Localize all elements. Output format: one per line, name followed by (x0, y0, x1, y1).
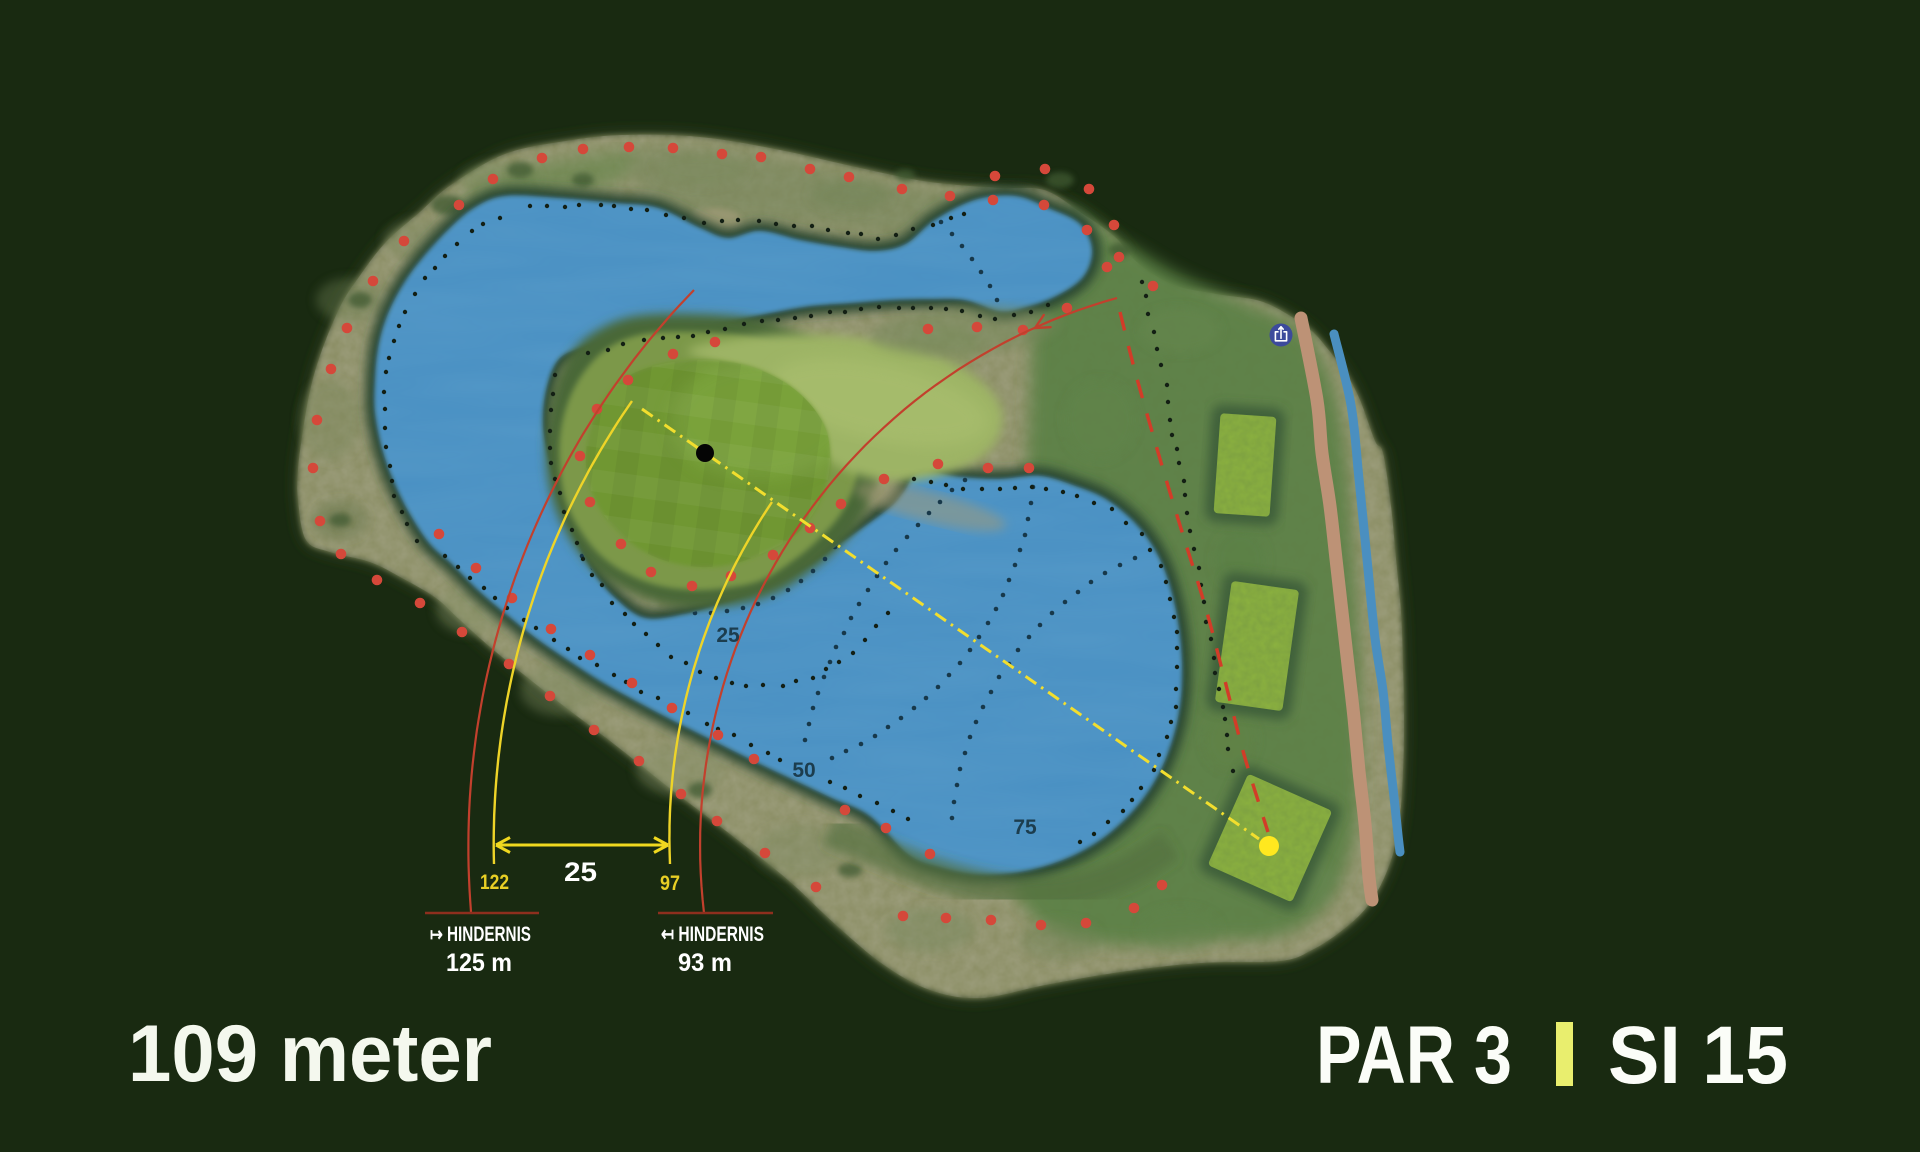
svg-text:PAR 3: PAR 3 (1316, 1010, 1512, 1101)
svg-text:25: 25 (716, 624, 740, 647)
svg-text:50: 50 (792, 759, 815, 782)
svg-text:109 meter: 109 meter (128, 1009, 492, 1099)
svg-text:25: 25 (564, 857, 597, 887)
svg-text:SI 15: SI 15 (1608, 1010, 1788, 1101)
svg-text:93 m: 93 m (678, 949, 732, 977)
svg-text:122: 122 (480, 871, 509, 894)
svg-text:75: 75 (1013, 816, 1037, 839)
svg-text:97: 97 (660, 872, 680, 895)
svg-text:125 m: 125 m (446, 949, 512, 977)
svg-text:↦ HINDERNIS: ↦ HINDERNIS (430, 923, 531, 946)
svg-text:↤ HINDERNIS: ↤ HINDERNIS (661, 923, 764, 946)
